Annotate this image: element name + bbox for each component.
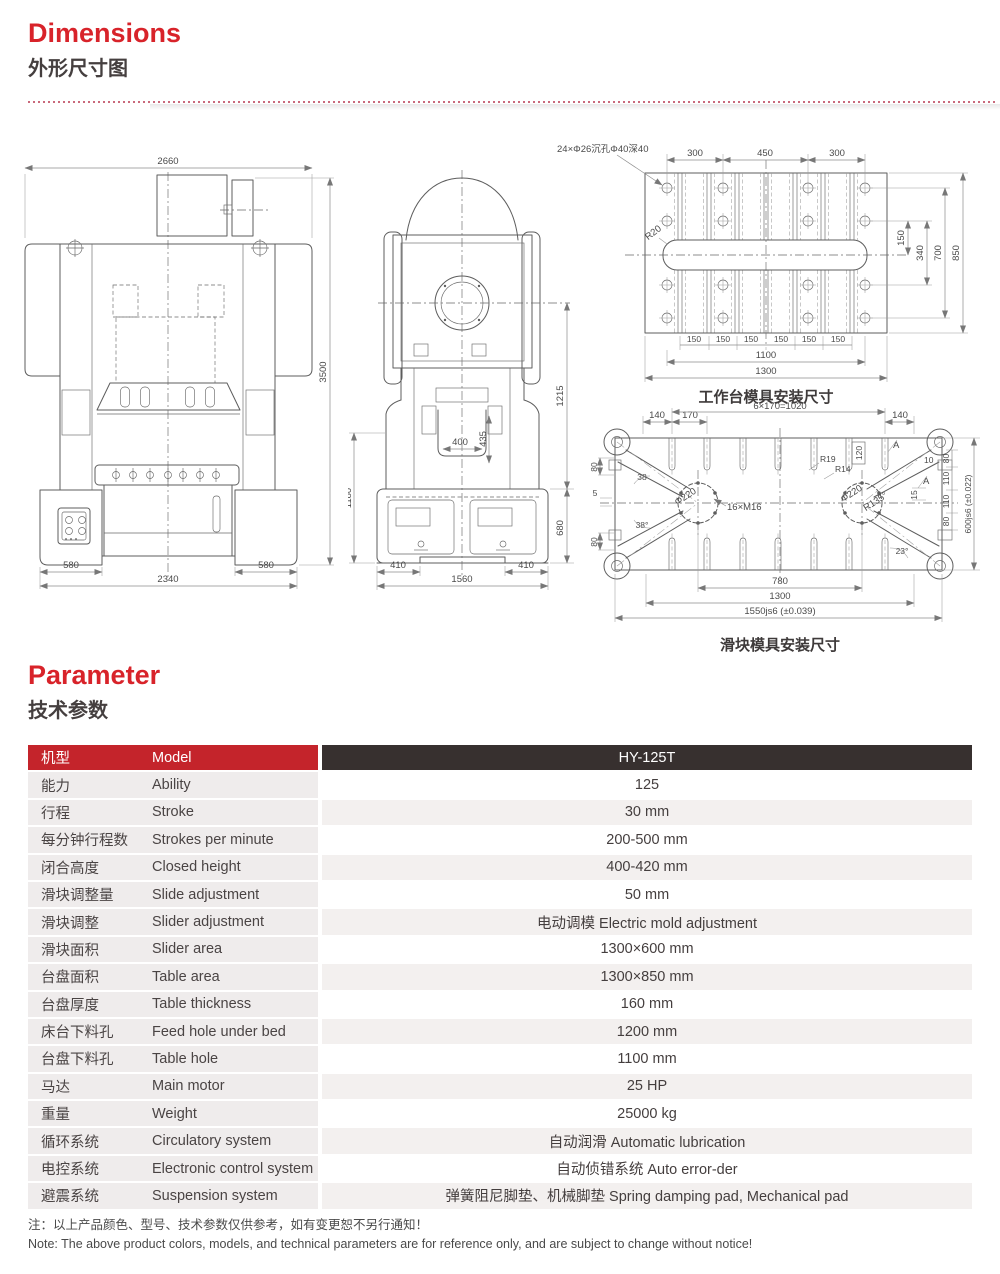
spec-label-en: Stroke (152, 804, 194, 820)
spec-label-cn: 台盘面积 (41, 966, 152, 987)
spec-label: 每分钟行程数Strokes per minute (28, 827, 318, 852)
dim-140-left: 140 (649, 410, 665, 421)
spec-label: 台盘下料孔Table hole (28, 1046, 318, 1071)
dim-15: 15 (909, 490, 919, 500)
spec-label-en: Main motor (152, 1078, 225, 1094)
dim-r20: R20 (643, 223, 664, 242)
table-row: 重量Weight 25000 kg (28, 1101, 972, 1126)
spec-label: 电控系统Electronic control system (28, 1156, 318, 1181)
dim-850: 850 (951, 245, 962, 261)
footnote-cn: 注：以上产品颜色、型号、技术参数仅供参考，如有变更恕不另行通知！ (28, 1216, 752, 1235)
section-a-mid: A (923, 476, 930, 487)
footnote-en: Note: The above product colors, models, … (28, 1235, 752, 1254)
slider-caption: 滑块模具安装尺寸 (720, 636, 840, 654)
control-box-buttons (65, 517, 85, 540)
spec-value: 25000 kg (322, 1101, 972, 1126)
dim-1300-slider: 1300 (769, 591, 790, 602)
spec-label: 滑块面积Slider area (28, 937, 318, 962)
table-row: 行程Stroke 30 mm (28, 800, 972, 825)
diagonal-arms (618, 450, 939, 558)
dim-1550js6: 1550js6 (±0.039) (744, 606, 815, 617)
dim-110-right-top: 110 (941, 471, 951, 485)
spec-label-en: Table hole (152, 1051, 218, 1067)
side-view-machine (377, 170, 570, 576)
spec-label: 重量Weight (28, 1101, 318, 1126)
table-row: 台盘下料孔Table hole 1100 mm (28, 1046, 972, 1071)
dim-700: 700 (933, 245, 944, 261)
dim-410-left: 410 (390, 560, 406, 571)
angle-38-bottom: 38° (636, 520, 649, 530)
spec-value: 200-500 mm (322, 827, 972, 852)
dim-435: 435 (478, 431, 489, 447)
dim-140-right: 140 (892, 410, 908, 421)
table-row: 台盘厚度Table thickness 160 mm (28, 992, 972, 1017)
spec-label-cn: 马达 (41, 1076, 152, 1097)
header-label-en: Model (152, 750, 192, 766)
spec-value: 1200 mm (322, 1019, 972, 1044)
slider-t-slots-bottom (669, 538, 888, 570)
spec-label-cn: 电控系统 (41, 1158, 152, 1179)
dotted-divider (28, 101, 995, 103)
spec-sheet-page: Dimensions 外形尺寸图 (0, 0, 1000, 1274)
table-row: 避震系统Suspension system 弹簧阻尼脚垫、机械脚垫 Spring… (28, 1183, 972, 1208)
dim-1180: 1180 (348, 488, 354, 508)
dim-1020: 6×170=1020 (753, 401, 806, 412)
divider-shadow (150, 104, 1000, 110)
spec-value: 自动润滑 Automatic lubrication (322, 1128, 972, 1153)
dim-16xM16: 16×M16 (727, 502, 762, 513)
spec-label-cn: 循环系统 (41, 1131, 152, 1152)
spec-label: 滑块调整量Slide adjustment (28, 882, 318, 907)
table-row: 电控系统Electronic control system 自动侦错系统 Aut… (28, 1156, 972, 1181)
spec-label: 能力Ability (28, 772, 318, 797)
section-a-top: A (893, 440, 900, 451)
table-row: 滑块调整Slider adjustment 电动调模 Electric mold… (28, 909, 972, 934)
dim-150-right: 150 (896, 230, 907, 246)
table-header-row: 机型 Model HY-125T (28, 745, 972, 770)
dim-580-right: 580 (258, 560, 274, 571)
front-view-machine (25, 172, 312, 578)
spec-label-en: Table area (152, 969, 220, 985)
table-row: 滑块面积Slider area 1300×600 mm (28, 937, 972, 962)
spec-label-en: Strokes per minute (152, 832, 274, 848)
dimensions-title: Dimensions (28, 18, 181, 49)
spec-label-en: Weight (152, 1106, 197, 1122)
spec-label-en: Table thickness (152, 996, 251, 1012)
spec-label-cn: 床台下料孔 (41, 1021, 152, 1042)
spec-label-en: Circulatory system (152, 1133, 271, 1149)
table-row: 滑块调整量Slide adjustment 50 mm (28, 882, 972, 907)
spec-value: 30 mm (322, 800, 972, 825)
dim-1300: 1300 (755, 366, 776, 377)
front-view-drawing: 2660 3500 580 580 2340 (22, 148, 352, 596)
spec-label: 滑块调整Slider adjustment (28, 909, 318, 934)
spec-label-cn: 滑块面积 (41, 939, 152, 960)
spec-value: 1300×850 mm (322, 964, 972, 989)
slot-pitch-6: 150 (831, 334, 845, 344)
slider-dimensions: 140 170 6×170=1020 140 80 80 5 38 38° Φ2… (590, 401, 980, 654)
spec-label-en: Slide adjustment (152, 887, 259, 903)
spec-value: 160 mm (322, 992, 972, 1017)
spec-label: 马达Main motor (28, 1074, 318, 1099)
spec-label: 避震系统Suspension system (28, 1183, 318, 1208)
spec-label-cn: 滑块调整 (41, 912, 152, 933)
slider-drawing: 140 170 6×170=1020 140 80 80 5 38 38° Φ2… (590, 400, 1000, 675)
spec-label-en: Slider adjustment (152, 914, 264, 930)
dim-80-right-bottom: 80 (941, 517, 951, 527)
slot-pitch-2: 150 (716, 334, 730, 344)
slot-pitch-4: 150 (774, 334, 788, 344)
spec-value: 125 (322, 772, 972, 797)
spec-label: 台盘面积Table area (28, 964, 318, 989)
spec-label-cn: 台盘厚度 (41, 994, 152, 1015)
dim-1560: 1560 (451, 574, 472, 585)
spec-label-en: Electronic control system (152, 1161, 313, 1177)
arm-centerlines (617, 442, 940, 566)
dim-80-left-bottom: 80 (590, 537, 599, 547)
dim-410-right: 410 (518, 560, 534, 571)
spec-label: 循环系统Circulatory system (28, 1128, 318, 1153)
dim-340: 340 (915, 245, 926, 261)
spec-label: 闭合高度Closed height (28, 855, 318, 880)
spec-label-en: Closed height (152, 859, 241, 875)
dimensions-subtitle: 外形尺寸图 (28, 52, 128, 81)
spec-label-en: Slider area (152, 941, 222, 957)
spec-label-cn: 避震系统 (41, 1185, 152, 1206)
spec-value: 1100 mm (322, 1046, 972, 1071)
slider-plate (600, 428, 958, 582)
spec-label: 台盘厚度Table thickness (28, 992, 318, 1017)
t-bolt-row (113, 468, 220, 482)
dim-780: 780 (772, 576, 788, 587)
slot-pitch-1: 150 (687, 334, 701, 344)
dim-580-left: 580 (63, 560, 79, 571)
dim-r14: R14 (835, 464, 851, 474)
dim-80-right-top: 80 (941, 454, 951, 464)
dim-400: 400 (452, 437, 468, 448)
parameter-title: Parameter (28, 660, 160, 691)
spec-label: 行程Stroke (28, 800, 318, 825)
table-row: 马达Main motor 25 HP (28, 1074, 972, 1099)
table-row: 台盘面积Table area 1300×850 mm (28, 964, 972, 989)
dim-2340: 2340 (157, 574, 178, 585)
dim-170: 170 (682, 410, 698, 421)
dim-10: 10 (924, 455, 934, 465)
footnotes: 注：以上产品颜色、型号、技术参数仅供参考，如有变更恕不另行通知！ Note: T… (28, 1216, 752, 1254)
bolt-cross-symbol (66, 239, 269, 257)
dim-5: 5 (593, 488, 598, 498)
spec-label-cn: 每分钟行程数 (41, 829, 152, 850)
spec-value: 弹簧阻尼脚垫、机械脚垫 Spring damping pad, Mechanic… (322, 1183, 972, 1208)
slot-pitch-3: 150 (744, 334, 758, 344)
dim-2660: 2660 (157, 156, 178, 167)
worktable-dimensions: 24×Φ26沉孔Φ40深40 R20 300 450 300 150 340 7… (557, 144, 968, 406)
spec-value: 400-420 mm (322, 855, 972, 880)
spec-value: 50 mm (322, 882, 972, 907)
dim-110-right-bottom: 110 (941, 494, 951, 508)
spec-value: 1300×600 mm (322, 937, 972, 962)
table-row: 循环系统Circulatory system 自动润滑 Automatic lu… (28, 1128, 972, 1153)
spec-value: 电动调模 Electric mold adjustment (322, 909, 972, 934)
dim-phi220-right: Φ220 (839, 483, 865, 505)
worktable-drawing: 24×Φ26沉孔Φ40深40 R20 300 450 300 150 340 7… (555, 140, 1000, 412)
table-row: 闭合高度Closed height 400-420 mm (28, 855, 972, 880)
spec-label-en: Feed hole under bed (152, 1024, 286, 1040)
spec-label-en: Ability (152, 777, 191, 793)
spec-label-cn: 重量 (41, 1103, 152, 1124)
dim-680: 680 (555, 520, 566, 536)
dim-1100: 1100 (756, 350, 776, 361)
model-value: HY-125T (322, 745, 972, 770)
table-row: 每分钟行程数Strokes per minute 200-500 mm (28, 827, 972, 852)
spec-label-cn: 闭合高度 (41, 857, 152, 878)
table-row: 能力Ability 125 (28, 772, 972, 797)
spec-label-en: Suspension system (152, 1188, 278, 1204)
spec-label: 床台下料孔Feed hole under bed (28, 1019, 318, 1044)
hole-callout: 24×Φ26沉孔Φ40深40 (557, 144, 648, 155)
spec-label-cn: 滑块调整量 (41, 884, 152, 905)
dim-3500: 3500 (318, 361, 329, 382)
worktable-plate (625, 160, 907, 345)
parameter-subtitle: 技术参数 (28, 694, 108, 723)
parameter-table: 机型 Model HY-125T 能力Ability 125 行程Stroke … (28, 745, 972, 1209)
dim-r135: R135° (862, 490, 890, 514)
header-label-cell: 机型 Model (28, 745, 318, 770)
header-label-cn: 机型 (41, 747, 152, 768)
spec-label-cn: 台盘下料孔 (41, 1048, 152, 1069)
front-view-dimensions: 2660 3500 580 580 2340 (25, 156, 334, 589)
dim-300-left: 300 (687, 148, 703, 159)
dim-80-left-top: 80 (590, 462, 599, 472)
dim-120: 120 (854, 446, 864, 460)
dim-600js6: 600js6 (±0.022) (963, 474, 973, 533)
spec-value: 25 HP (322, 1074, 972, 1099)
dim-phi220-left: Φ220 (673, 486, 699, 508)
dim-450: 450 (757, 148, 773, 159)
spec-label-cn: 能力 (41, 775, 152, 796)
dim-300-right: 300 (829, 148, 845, 159)
slot-pitch-5: 150 (802, 334, 816, 344)
table-row: 床台下料孔Feed hole under bed 1200 mm (28, 1019, 972, 1044)
spec-value: 自动侦错系统 Auto error-der (322, 1156, 972, 1181)
dim-r19: R19 (820, 454, 836, 464)
spec-label-cn: 行程 (41, 802, 152, 823)
